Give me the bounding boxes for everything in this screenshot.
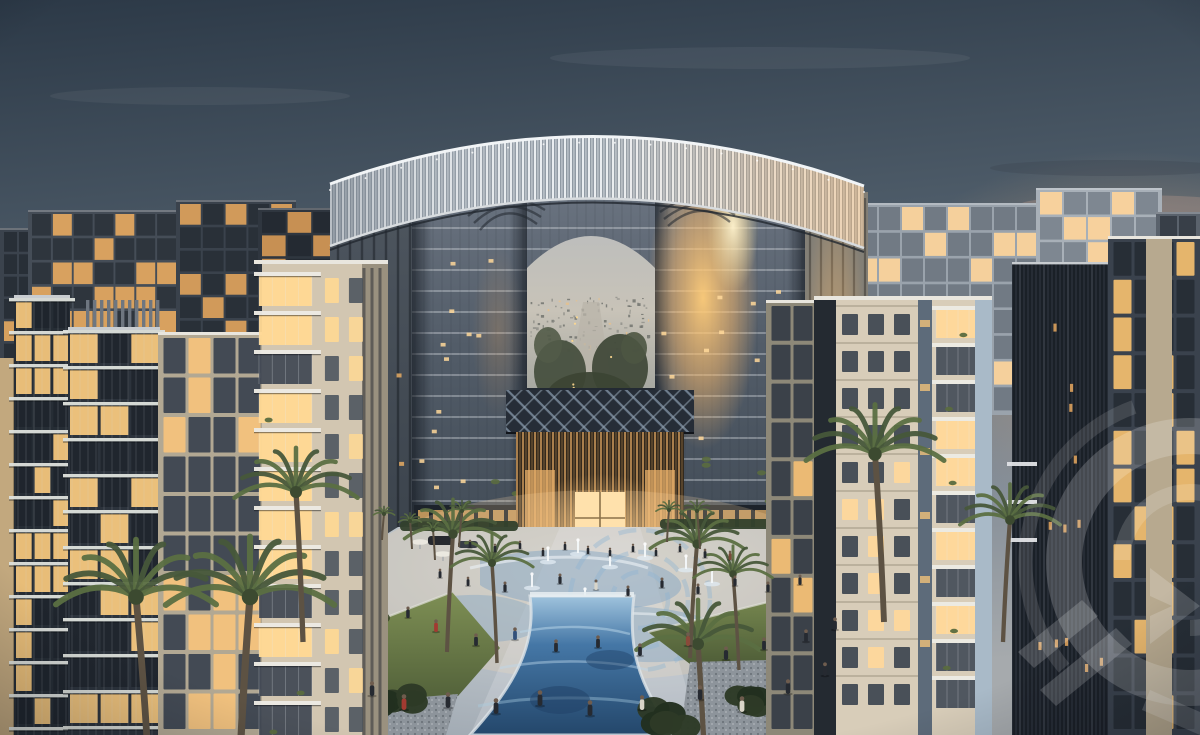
render-canvas: [0, 0, 1200, 735]
vignette: [0, 0, 1200, 735]
scene-svg: [0, 0, 1200, 735]
